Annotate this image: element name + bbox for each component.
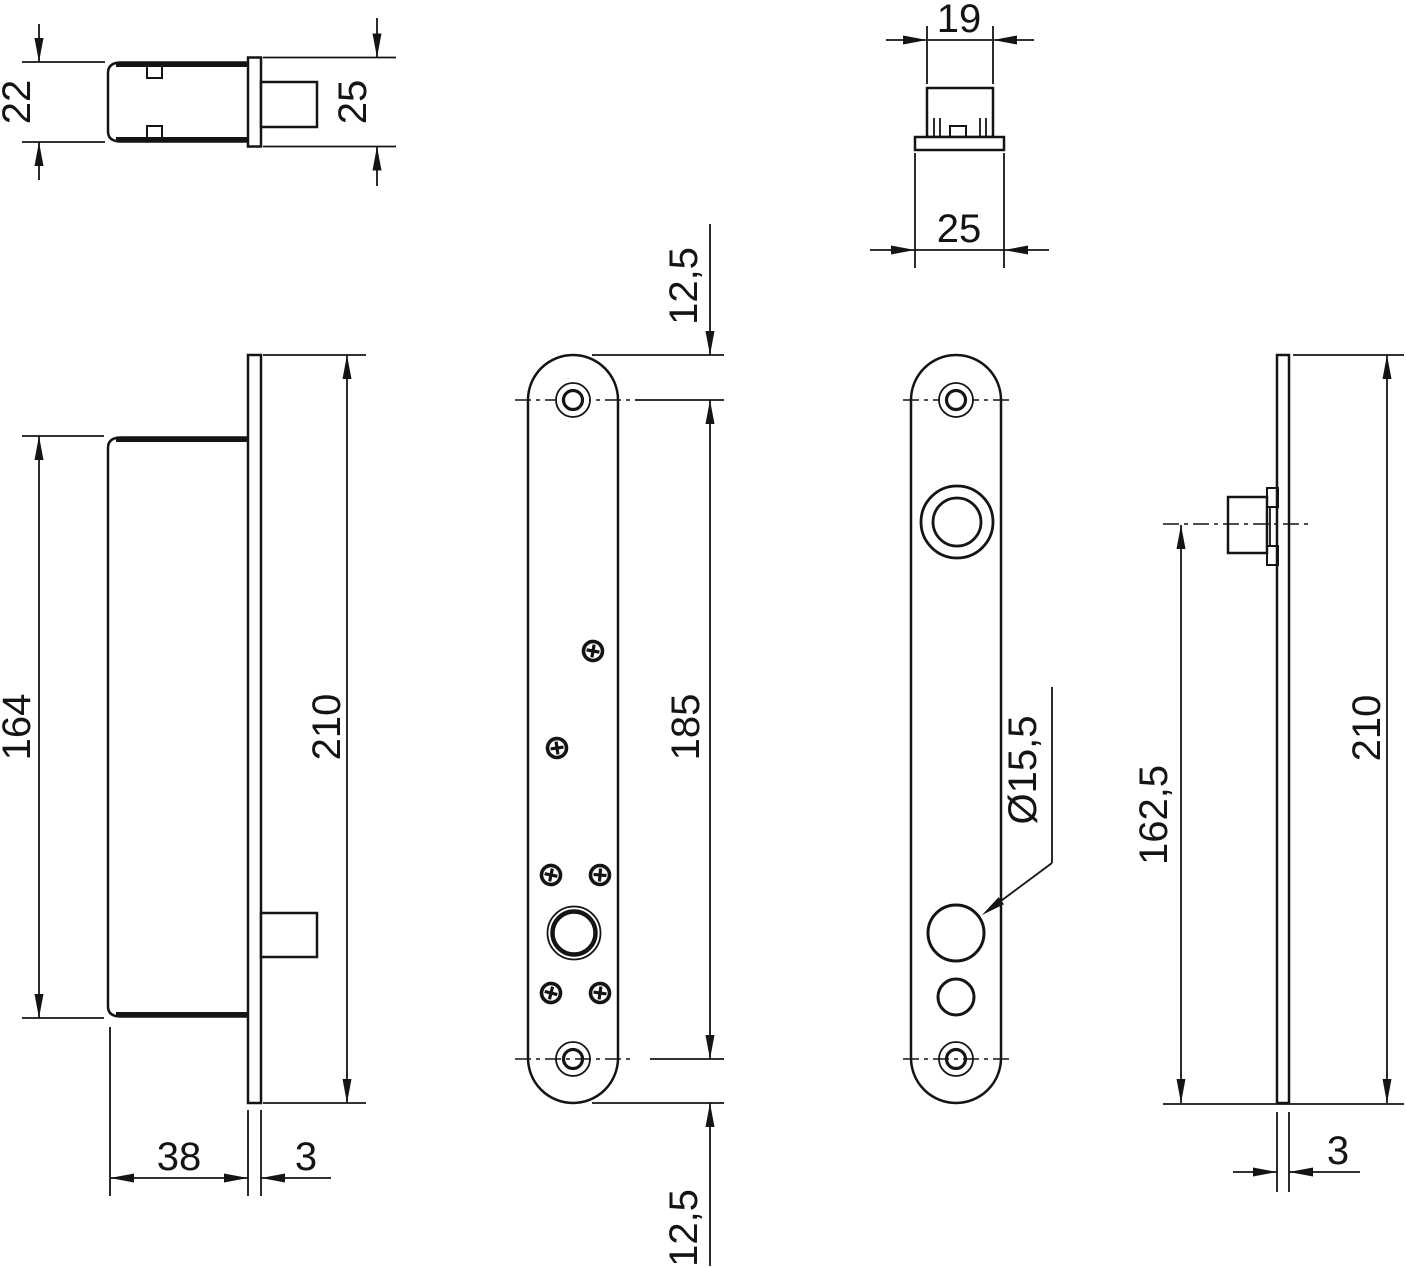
view-backplate-front: Ø15,5	[903, 355, 1052, 1103]
dim-25-left-label: 25	[331, 80, 375, 125]
cylinder-block	[927, 88, 993, 137]
screw-icon	[590, 865, 611, 886]
dim-plate-thickness-right: 3	[1233, 1112, 1360, 1192]
dim-185-label: 185	[664, 694, 708, 761]
screw-icon	[589, 982, 610, 1003]
dim-3-right-label: 3	[1327, 1129, 1349, 1173]
backplate-front	[911, 355, 1001, 1103]
dim-12-5-top-label: 12,5	[662, 247, 706, 325]
bolt-side	[261, 913, 317, 957]
dim-plate-width-top: 25	[870, 153, 1049, 268]
dim-body-height: 164	[0, 436, 104, 1018]
dim-19-label: 19	[937, 0, 982, 41]
screw-icon	[546, 737, 567, 758]
mount-hole-top-back	[939, 383, 973, 417]
body-side-outline	[108, 438, 248, 1017]
dim-body-depth: 38 3	[110, 1027, 331, 1196]
screw-icon	[582, 640, 604, 662]
dim-diameter-15-5-label: Ø15,5	[1001, 716, 1045, 825]
dim-25-top-label: 25	[937, 207, 982, 251]
screw-icon	[540, 864, 563, 887]
cylinder-hole-front	[548, 907, 601, 960]
dim-162-5-label: 162,5	[1132, 765, 1176, 865]
dim-block-width: 19	[886, 0, 1034, 84]
faceplate-side	[248, 355, 261, 1103]
dim-12-5-bottom-label: 12,5	[662, 1189, 706, 1267]
dim-hole-top-offset: 12,5	[592, 224, 724, 400]
dim-cylinder-offset: 162,5	[1132, 525, 1186, 1103]
view-faceplate-front: 12,5 185 12,5	[515, 224, 724, 1267]
dim-plate-height-left: 210	[263, 355, 366, 1103]
view-body-top: 22 25	[0, 18, 396, 186]
cylinder-block-side	[1228, 497, 1267, 553]
view-plate-edge: 162,5 210 3	[1132, 355, 1404, 1192]
view-body-side: 164 210 38 3	[0, 355, 366, 1196]
faceplate-edge	[248, 58, 261, 147]
body-outline	[108, 63, 248, 142]
dim-210-left-label: 210	[305, 694, 349, 761]
dim-38-label: 38	[157, 1135, 202, 1179]
technical-drawing-canvas: 22 25 19	[0, 0, 1406, 1268]
lock-drawing-svg: 22 25 19	[0, 0, 1406, 1268]
view-cylinder-section: 19 25	[870, 0, 1049, 268]
dim-hole-bottom-offset: 12,5	[592, 1059, 724, 1267]
dim-22-label: 22	[0, 80, 39, 125]
dim-body-width: 22	[0, 24, 105, 180]
dim-210-right-label: 210	[1345, 695, 1389, 762]
dim-hole-spacing: 185	[664, 400, 715, 1059]
plate-section	[915, 137, 1004, 150]
bolt	[261, 82, 317, 127]
dim-3-left-label: 3	[295, 1135, 317, 1179]
dim-164-label: 164	[0, 694, 39, 761]
plate-edge	[1277, 355, 1289, 1103]
mount-hole-top	[556, 383, 590, 417]
